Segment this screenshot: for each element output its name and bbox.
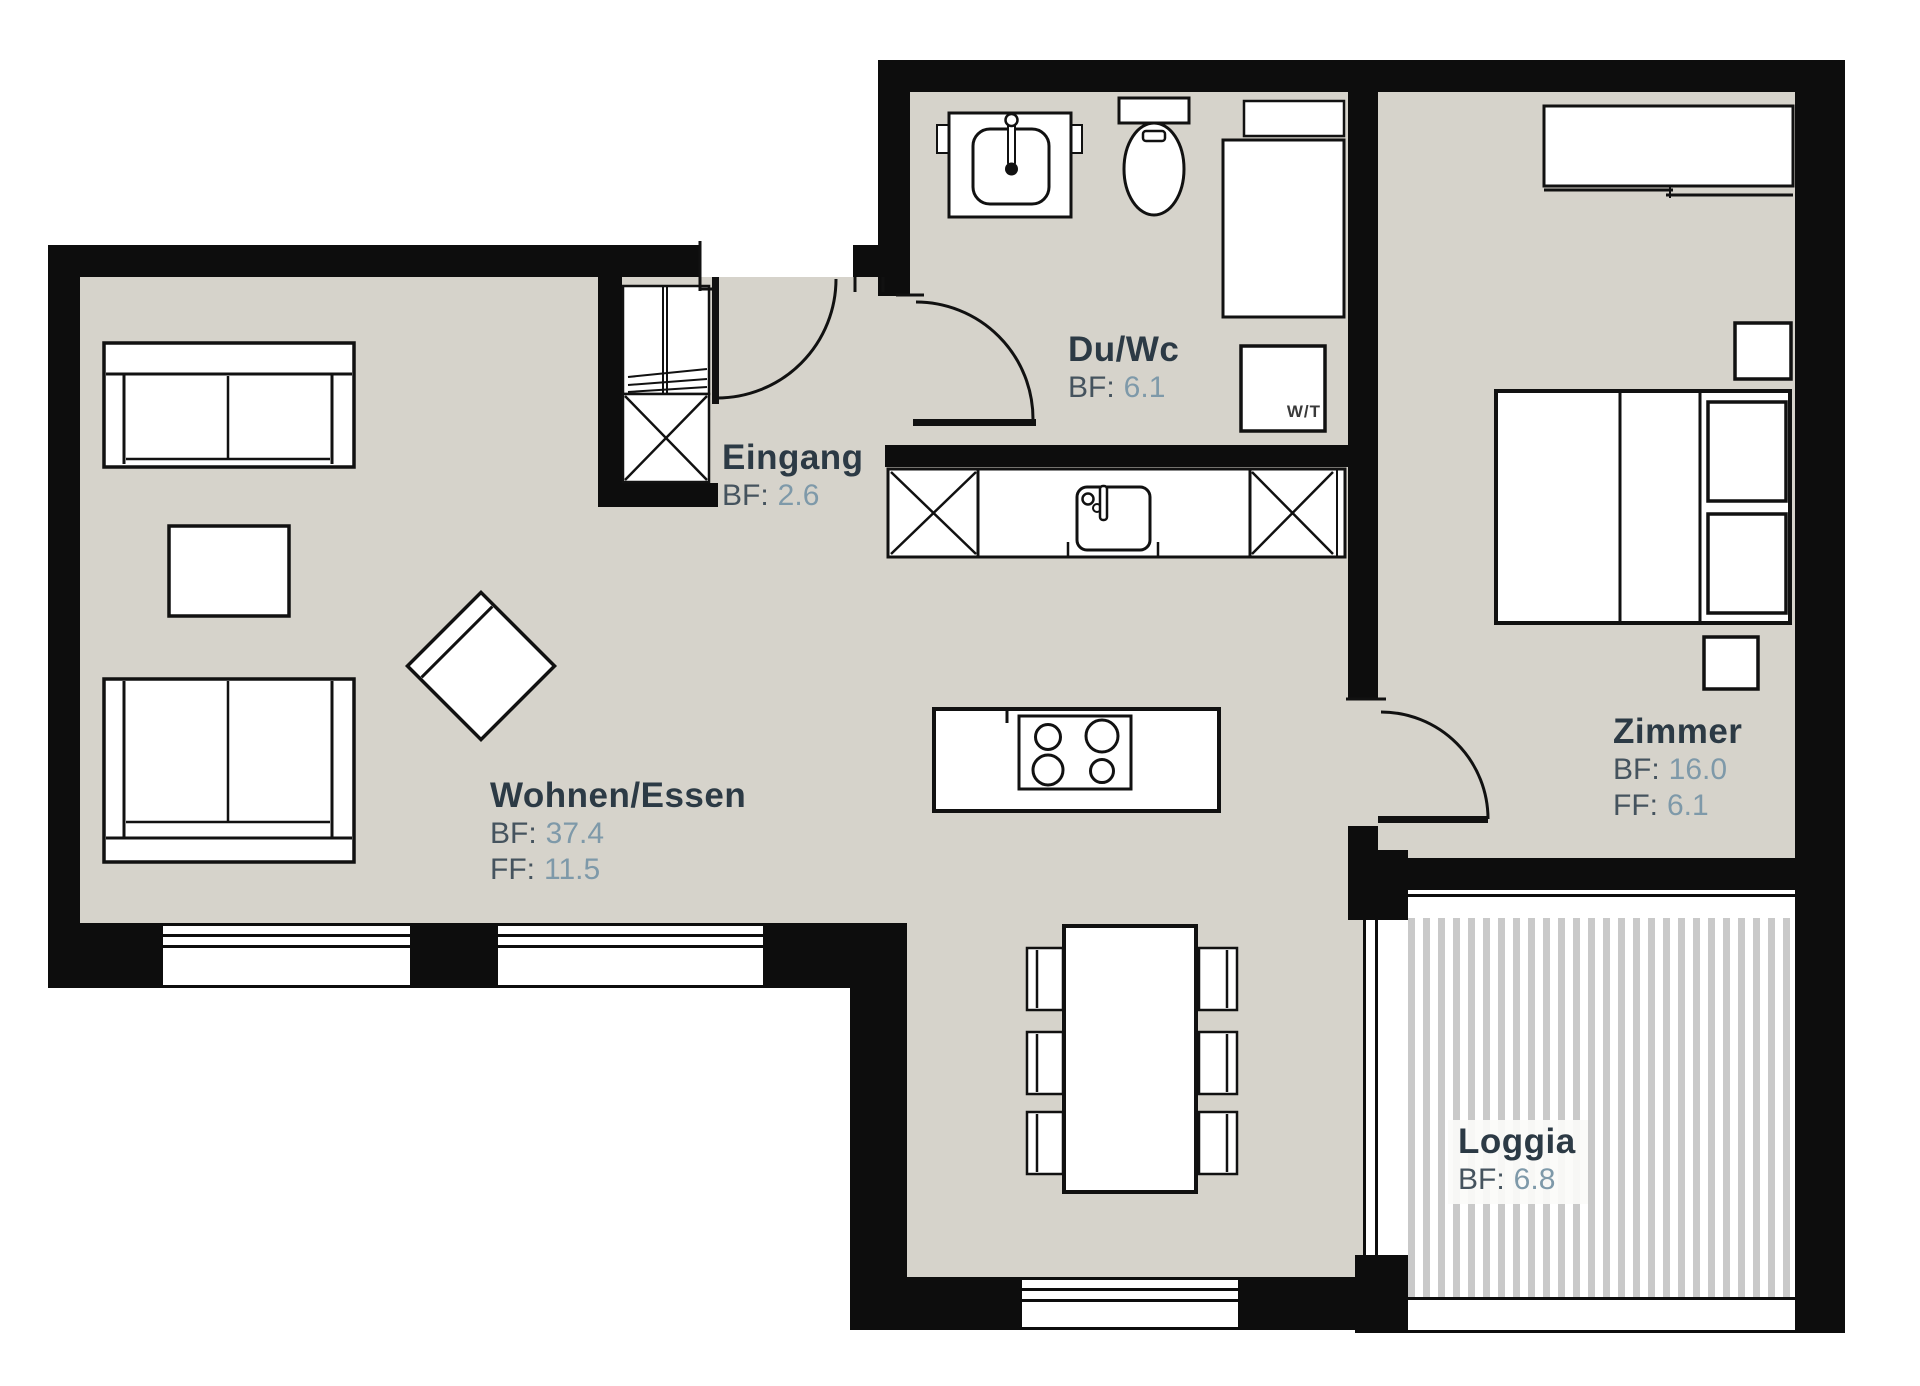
area-value: 6.1 <box>1124 371 1166 404</box>
chair <box>1027 948 1063 1010</box>
door-swing-arc <box>916 302 1033 419</box>
entrance-closet <box>623 286 709 482</box>
washer-dryer-label: W/T <box>1259 402 1321 422</box>
dining-table <box>1064 926 1196 1192</box>
door-leaf <box>1378 816 1488 823</box>
dining-table-outline <box>1064 926 1196 1192</box>
coffee-table-outline <box>169 526 289 616</box>
chair <box>1027 1112 1063 1174</box>
toilet <box>1119 98 1189 215</box>
bathroom-door <box>913 302 1036 426</box>
pillow <box>1708 514 1786 613</box>
chair <box>1199 1032 1237 1094</box>
armchair-outline <box>407 592 554 739</box>
nightstand-top <box>1735 323 1791 379</box>
basin-drain <box>1005 163 1018 176</box>
room-label-eingang: Eingang BF:2.6 <box>722 438 864 514</box>
bath-shelf <box>1244 101 1344 136</box>
sink-knob <box>1083 494 1094 505</box>
room-area: BF:37.4 <box>490 816 746 852</box>
door-leaf <box>913 419 1036 426</box>
nightstand-outline <box>1735 323 1791 379</box>
room-label-zimmer: Zimmer BF:16.0 FF:6.1 <box>1613 712 1742 824</box>
shower-tray <box>1223 140 1344 317</box>
kitchen-sink <box>1077 486 1150 550</box>
area-label: FF: <box>490 853 535 886</box>
faucet-knob <box>1006 114 1018 126</box>
area-value: 16.0 <box>1669 753 1727 786</box>
door-swing-arc <box>1381 712 1488 819</box>
furniture-layer <box>0 0 1920 1386</box>
room-area: FF:11.5 <box>490 852 746 888</box>
area-label: BF: <box>722 479 769 512</box>
area-label: BF: <box>1613 753 1660 786</box>
nightstand-bottom <box>1704 637 1758 689</box>
chair <box>1199 948 1237 1010</box>
bathroom-vanity <box>937 113 1082 217</box>
room-label-wohnen-essen: Wohnen/Essen BF:37.4 FF:11.5 <box>490 776 746 888</box>
entrance-door <box>712 277 836 404</box>
chair <box>1199 1112 1237 1174</box>
room-area: FF:6.1 <box>1613 788 1742 824</box>
room-name: Wohnen/Essen <box>490 776 746 816</box>
chair <box>1027 1032 1063 1094</box>
floor-plan-canvas: Eingang BF:2.6 Du/Wc BF:6.1 Wohnen/Essen… <box>0 0 1920 1386</box>
armchair <box>407 592 554 739</box>
room-label-du-wc: Du/Wc BF:6.1 <box>1068 330 1179 406</box>
room-name: Du/Wc <box>1068 330 1179 370</box>
area-value: 6.1 <box>1667 789 1709 822</box>
sofa-bottom <box>104 679 354 862</box>
room-area: BF:6.1 <box>1068 370 1179 406</box>
door-swing-arc <box>717 279 836 398</box>
room-label-loggia: Loggia BF:6.8 <box>1448 1120 1588 1204</box>
sofa-top <box>104 343 354 467</box>
burner <box>1086 720 1118 752</box>
area-label: BF: <box>1068 371 1115 404</box>
toilet-tank <box>1119 98 1189 123</box>
pillow <box>1708 402 1786 501</box>
burner <box>1091 760 1114 783</box>
room-name: Loggia <box>1458 1122 1576 1162</box>
area-value: 6.8 <box>1514 1163 1556 1196</box>
shower <box>1223 101 1344 317</box>
coffee-table <box>169 526 289 616</box>
room-area: BF:2.6 <box>722 478 864 514</box>
area-value: 2.6 <box>778 479 820 512</box>
bed <box>1496 391 1790 623</box>
door-leaf <box>712 277 719 404</box>
area-value: 11.5 <box>544 853 600 886</box>
area-value: 37.4 <box>546 817 604 850</box>
room-area: BF:6.8 <box>1458 1162 1576 1198</box>
room-name: Zimmer <box>1613 712 1742 752</box>
wardrobe <box>1544 106 1793 198</box>
area-label: BF: <box>490 817 537 850</box>
vanity-wing <box>937 125 949 153</box>
burner <box>1033 755 1063 785</box>
area-label: FF: <box>1613 789 1658 822</box>
room-name: Eingang <box>722 438 864 478</box>
room-area: BF:16.0 <box>1613 752 1742 788</box>
wardrobe-outline <box>1544 106 1793 186</box>
nightstand-outline <box>1704 637 1758 689</box>
bedroom-door <box>1378 712 1488 823</box>
kitchen-island <box>934 709 1219 811</box>
sink-faucet <box>1100 486 1107 520</box>
area-label: BF: <box>1458 1163 1505 1196</box>
burner <box>1036 725 1061 750</box>
toilet-flush <box>1143 131 1165 141</box>
